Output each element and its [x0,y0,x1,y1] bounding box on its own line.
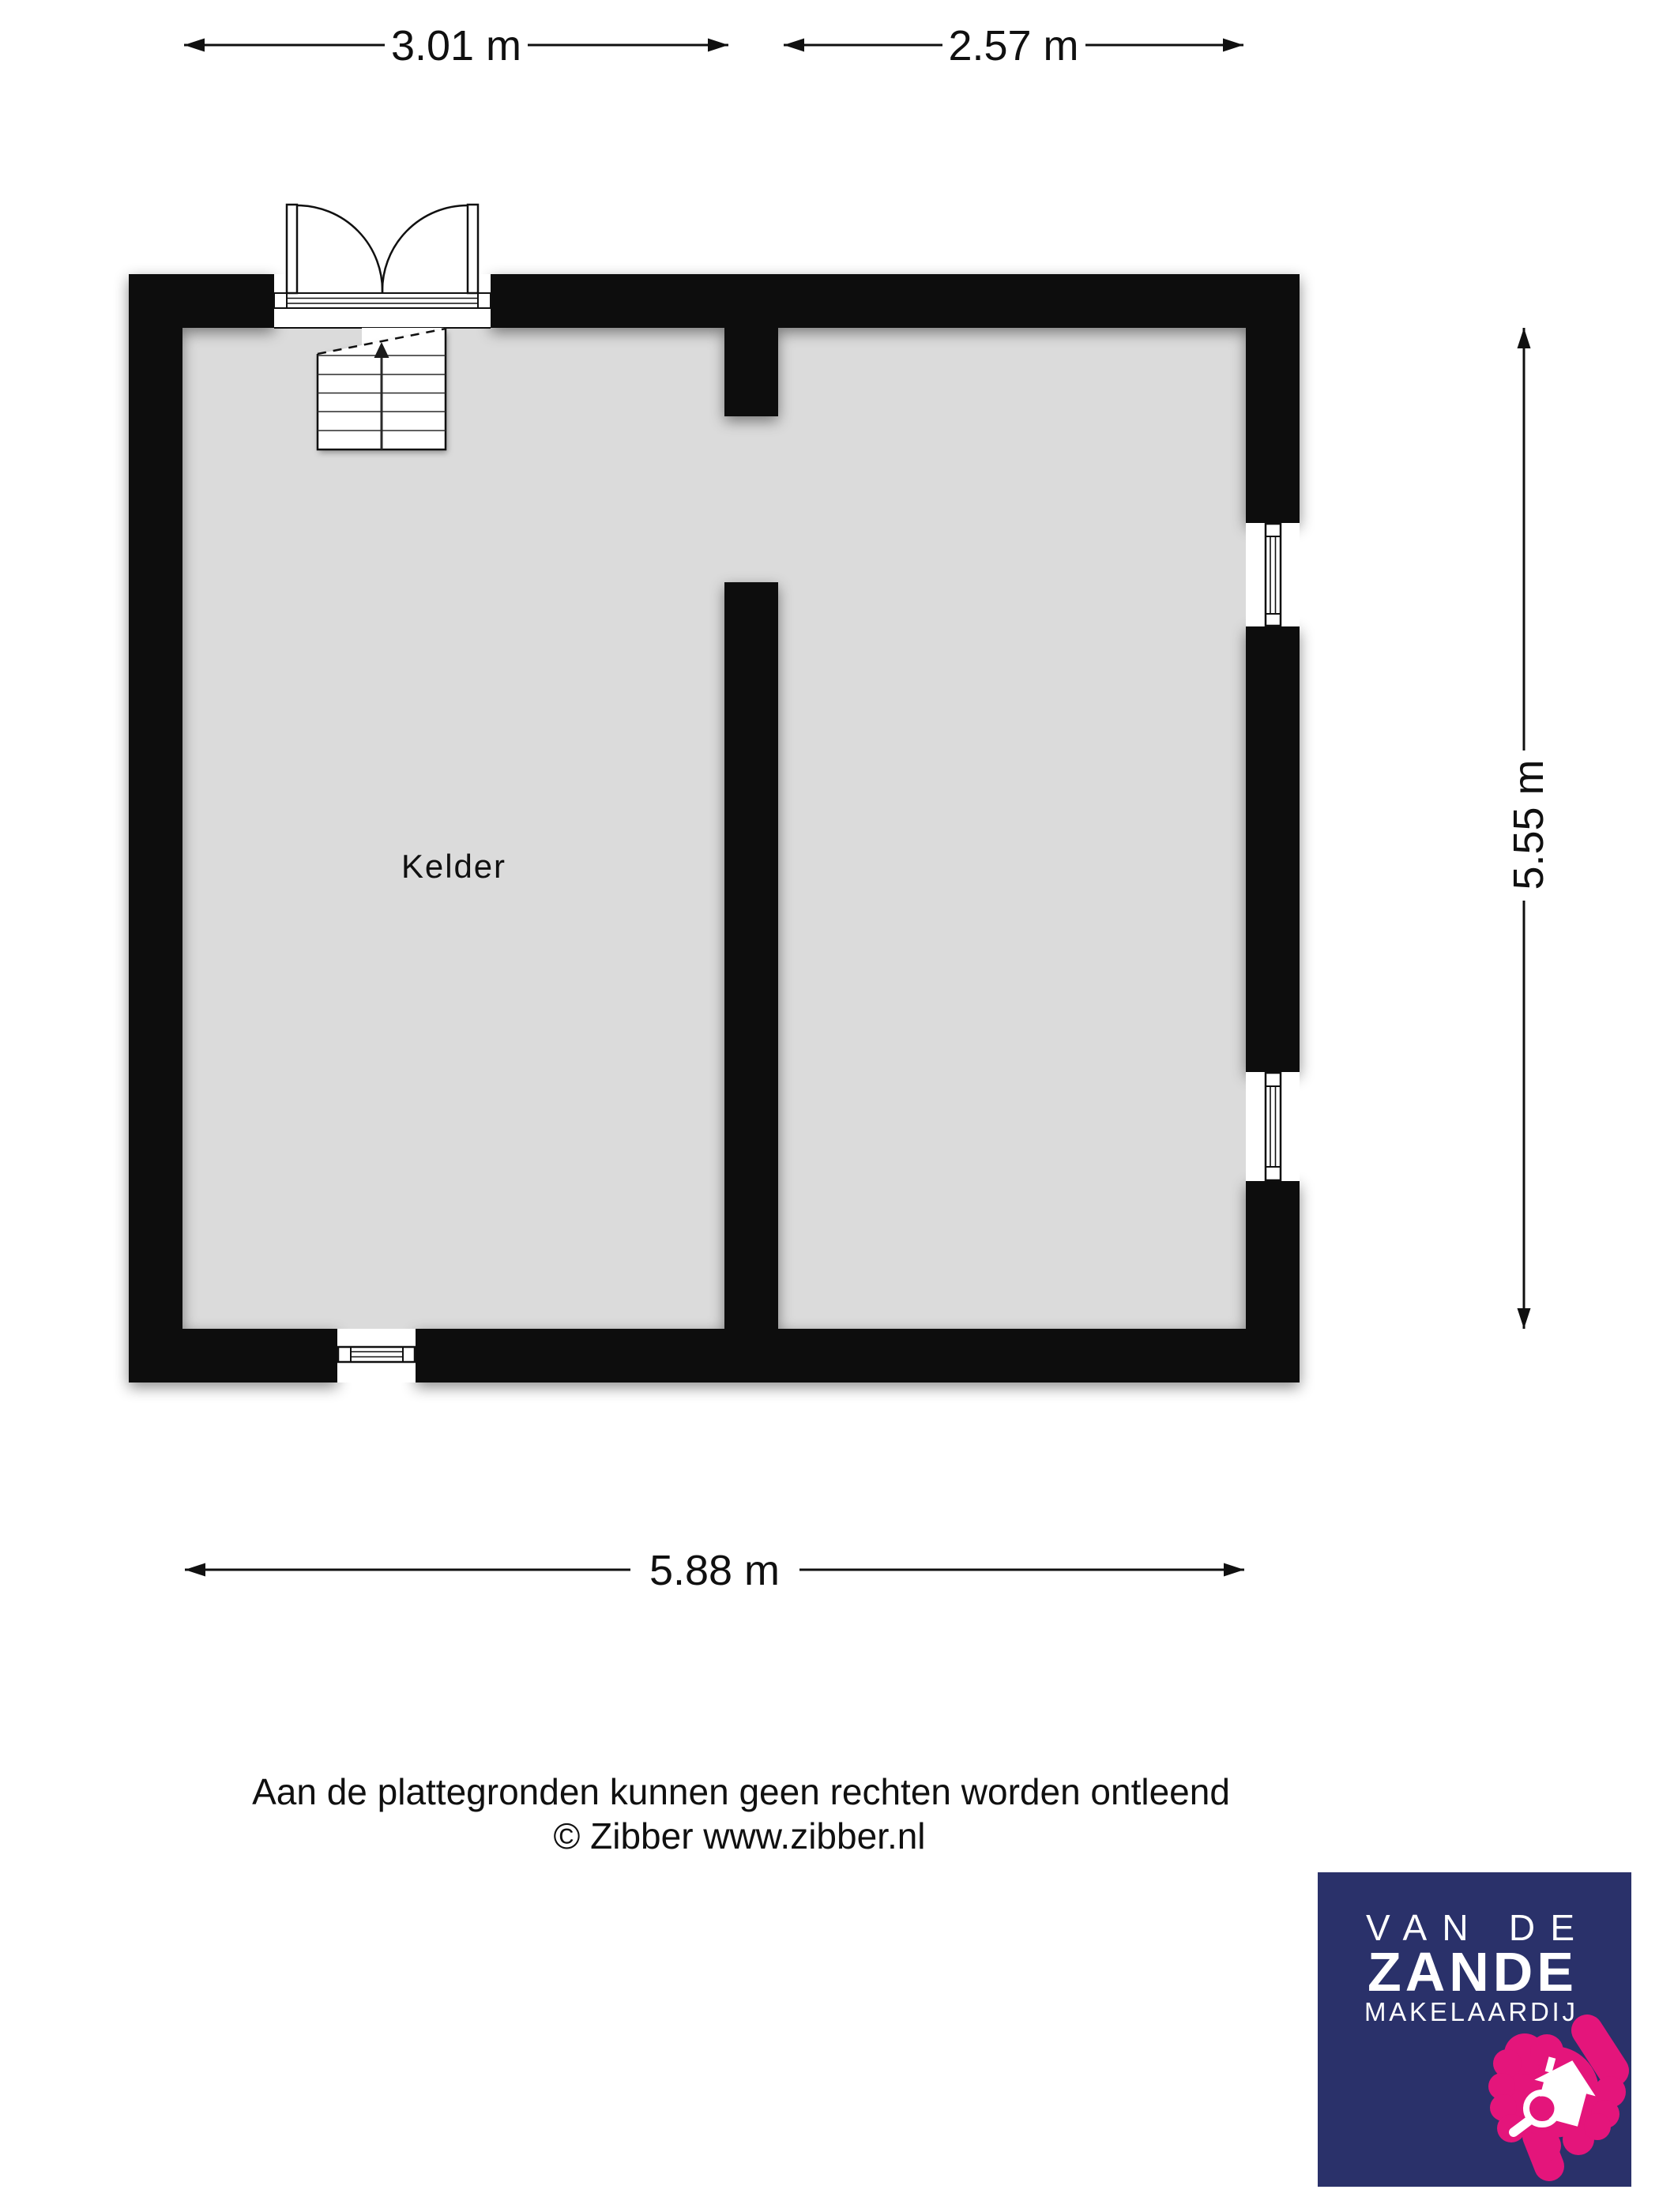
svg-text:5.88 m: 5.88 m [649,1547,780,1594]
svg-text:5.55 m: 5.55 m [1505,759,1552,890]
svg-text:Kelder: Kelder [401,848,505,885]
svg-text:© Zibber www.zibber.nl: © Zibber www.zibber.nl [553,1815,925,1856]
svg-text:MAKELAARDIJ: MAKELAARDIJ [1364,1997,1575,2026]
svg-text:ZANDE: ZANDE [1367,1941,1574,2003]
svg-text:2.57 m: 2.57 m [948,22,1078,70]
svg-text:3.01 m: 3.01 m [391,22,521,70]
svg-text:Aan de plattegronden kunnen ge: Aan de plattegronden kunnen geen rechten… [252,1771,1230,1812]
